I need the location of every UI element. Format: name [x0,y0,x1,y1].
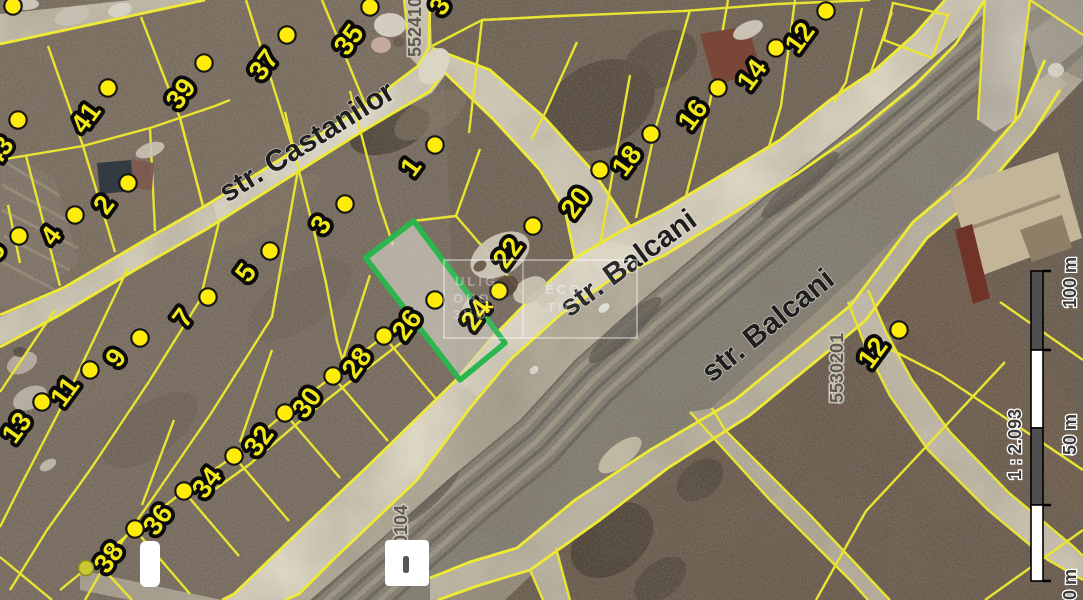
svg-text:TIL: TIL [547,300,576,315]
svg-text:1 : 2.093: 1 : 2.093 [1005,409,1025,480]
svg-text:ECO: ECO [545,282,582,297]
svg-text:0104: 0104 [391,505,411,545]
svg-text:100 m: 100 m [1060,257,1080,308]
svg-text:552410: 552410 [405,0,425,57]
svg-text:3HO: 3HO [453,307,489,322]
svg-text:ULIG: ULIG [455,274,498,289]
svg-text:OHO: OHO [453,291,492,306]
svg-text:0 m: 0 m [1060,569,1080,600]
svg-text:50 m: 50 m [1060,414,1080,455]
svg-text:5530201: 5530201 [827,333,847,403]
